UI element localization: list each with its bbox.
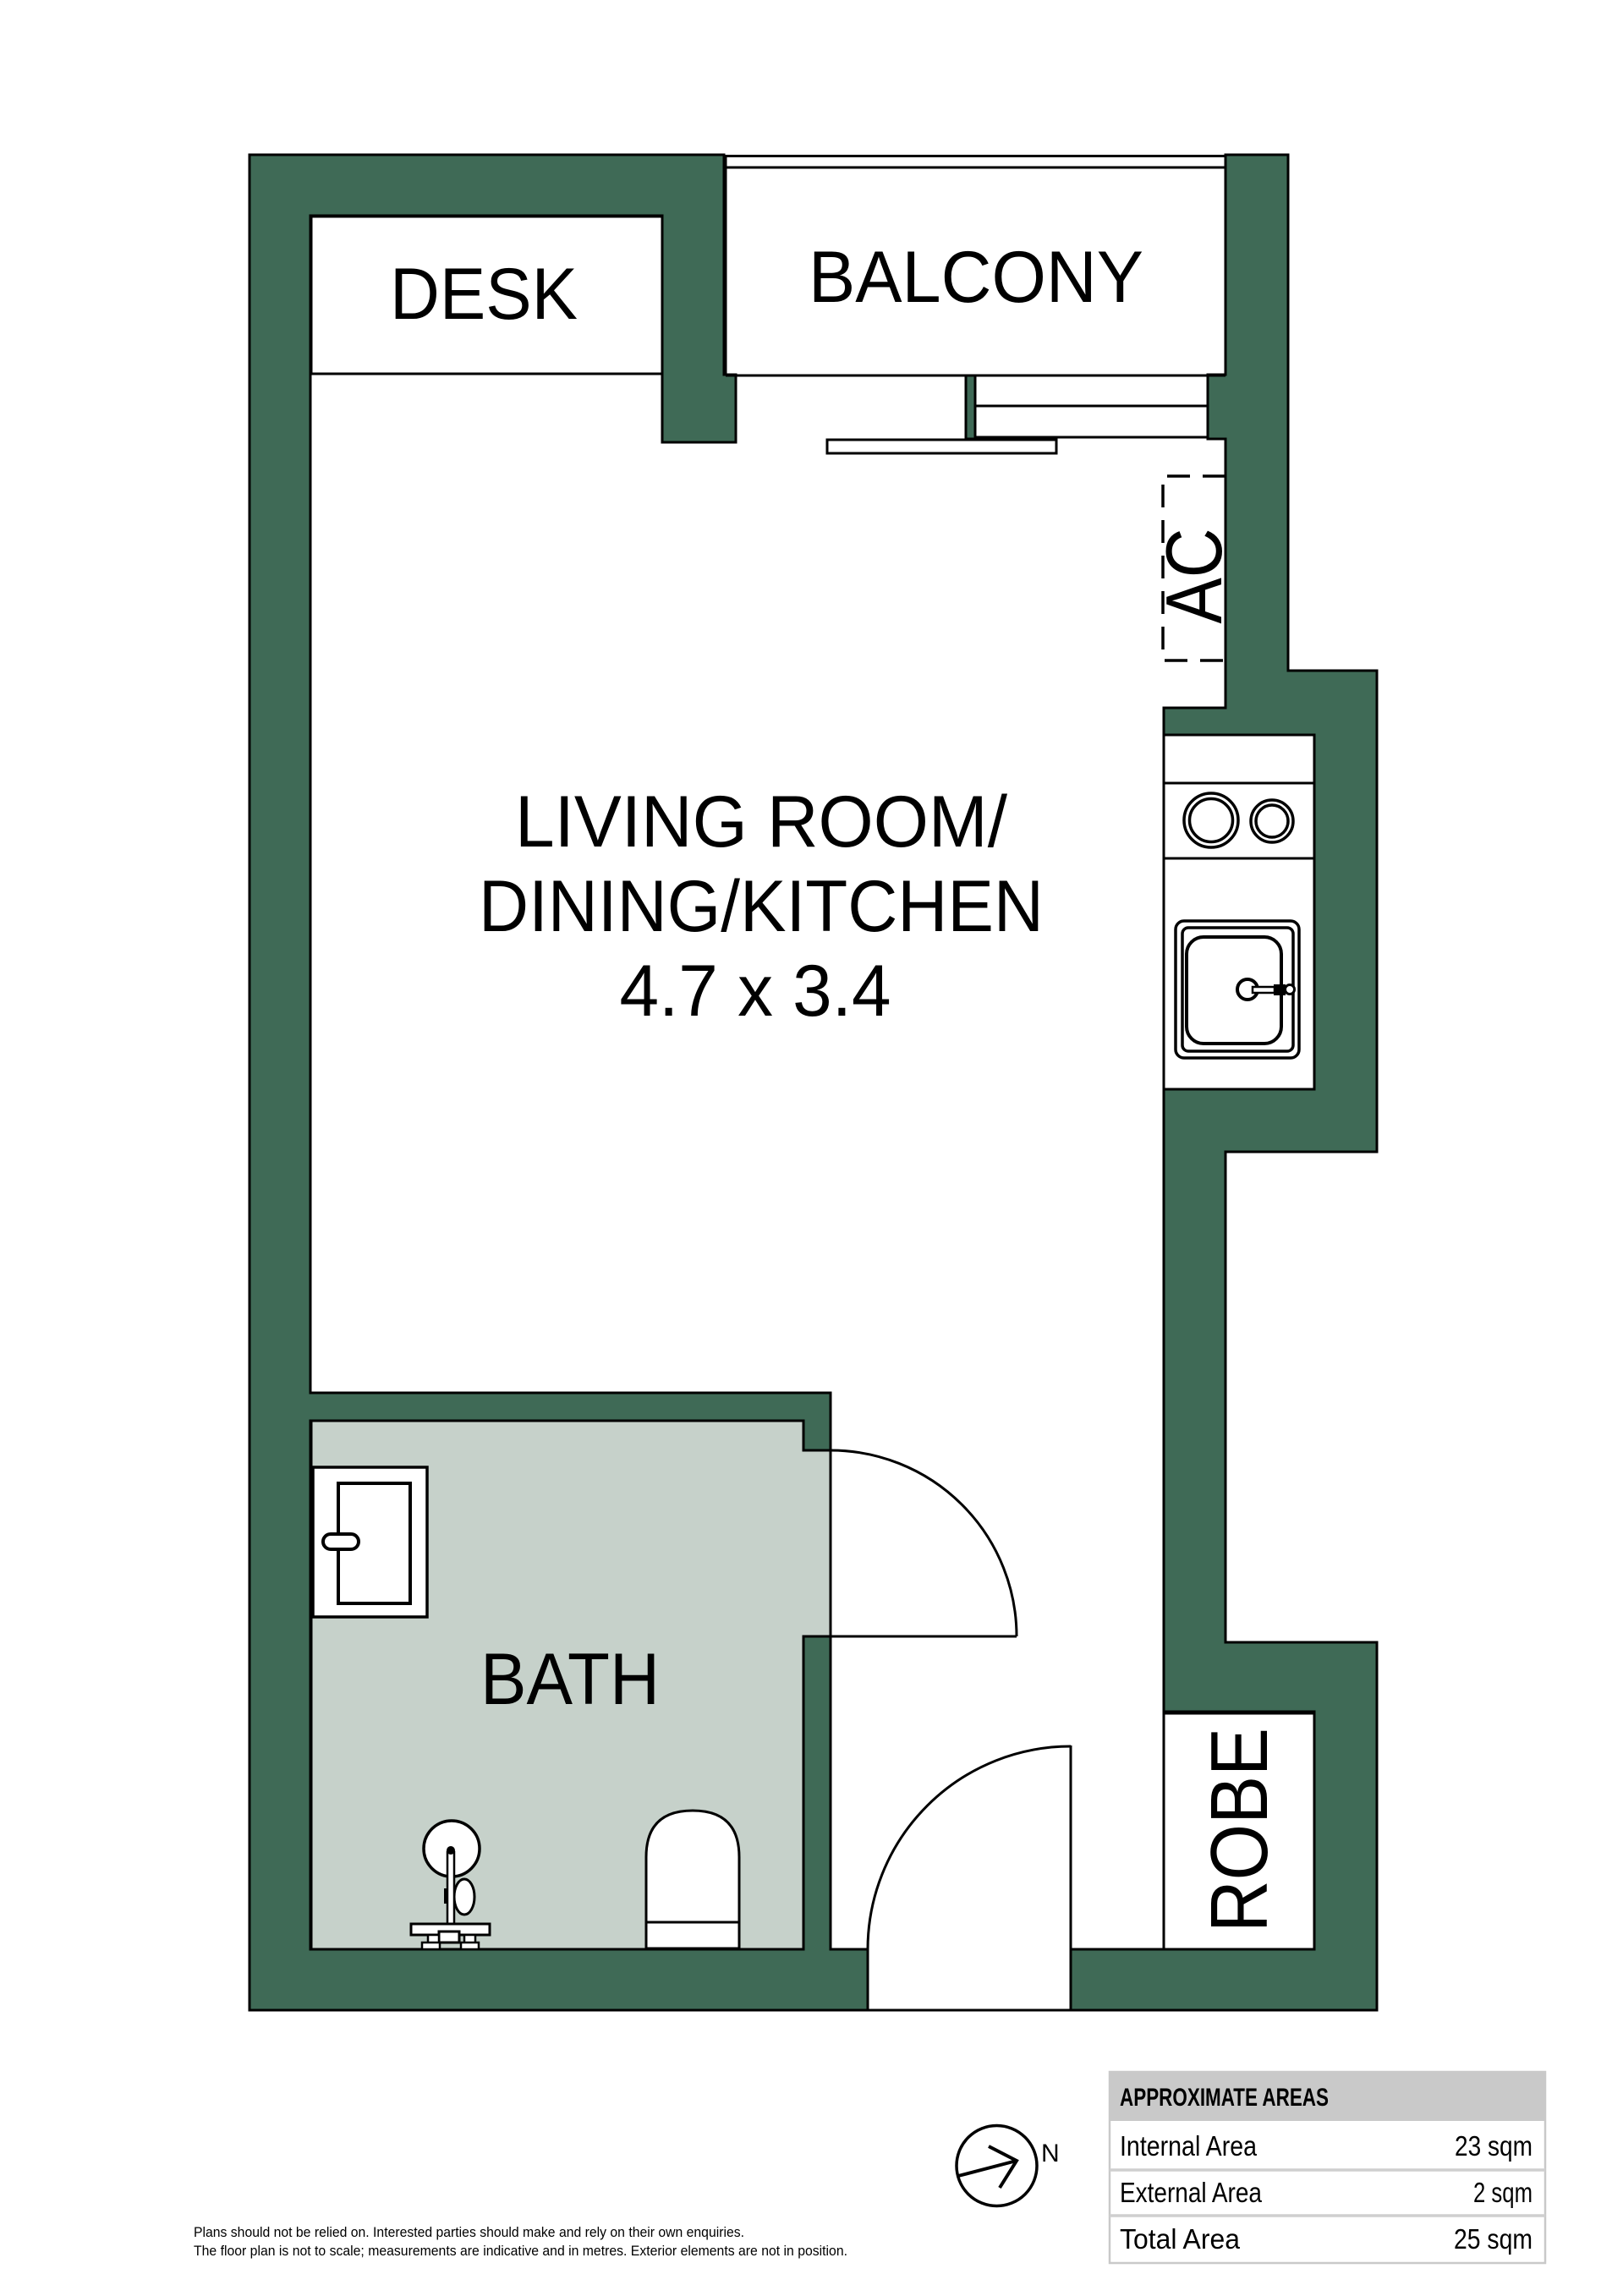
svg-text:Total Area: Total Area: [1120, 2223, 1241, 2255]
svg-text:4.7 x 3.4: 4.7 x 3.4: [620, 951, 891, 1032]
svg-text:2 sqm: 2 sqm: [1473, 2177, 1533, 2208]
svg-text:AC: AC: [1149, 529, 1238, 624]
svg-text:The floor plan is not to scale: The floor plan is not to scale; measurem…: [194, 2243, 847, 2259]
svg-text:APPROXIMATE AREAS: APPROXIMATE AREAS: [1120, 2084, 1329, 2112]
svg-text:DESK: DESK: [390, 254, 578, 335]
svg-text:N: N: [1041, 2140, 1060, 2167]
svg-text:DINING/KITCHEN: DINING/KITCHEN: [479, 866, 1044, 947]
svg-text:BALCONY: BALCONY: [809, 237, 1143, 318]
svg-text:25 sqm: 25 sqm: [1454, 2223, 1533, 2255]
svg-text:BATH: BATH: [480, 1639, 660, 1720]
svg-text:LIVING ROOM/: LIVING ROOM/: [515, 781, 1007, 863]
svg-text:Plans should not be relied on.: Plans should not be relied on. Intereste…: [194, 2224, 744, 2240]
svg-text:Internal Area: Internal Area: [1120, 2130, 1258, 2162]
svg-text:23 sqm: 23 sqm: [1455, 2130, 1533, 2162]
svg-text:External Area: External Area: [1120, 2177, 1263, 2208]
svg-text:ROBE: ROBE: [1194, 1728, 1285, 1932]
